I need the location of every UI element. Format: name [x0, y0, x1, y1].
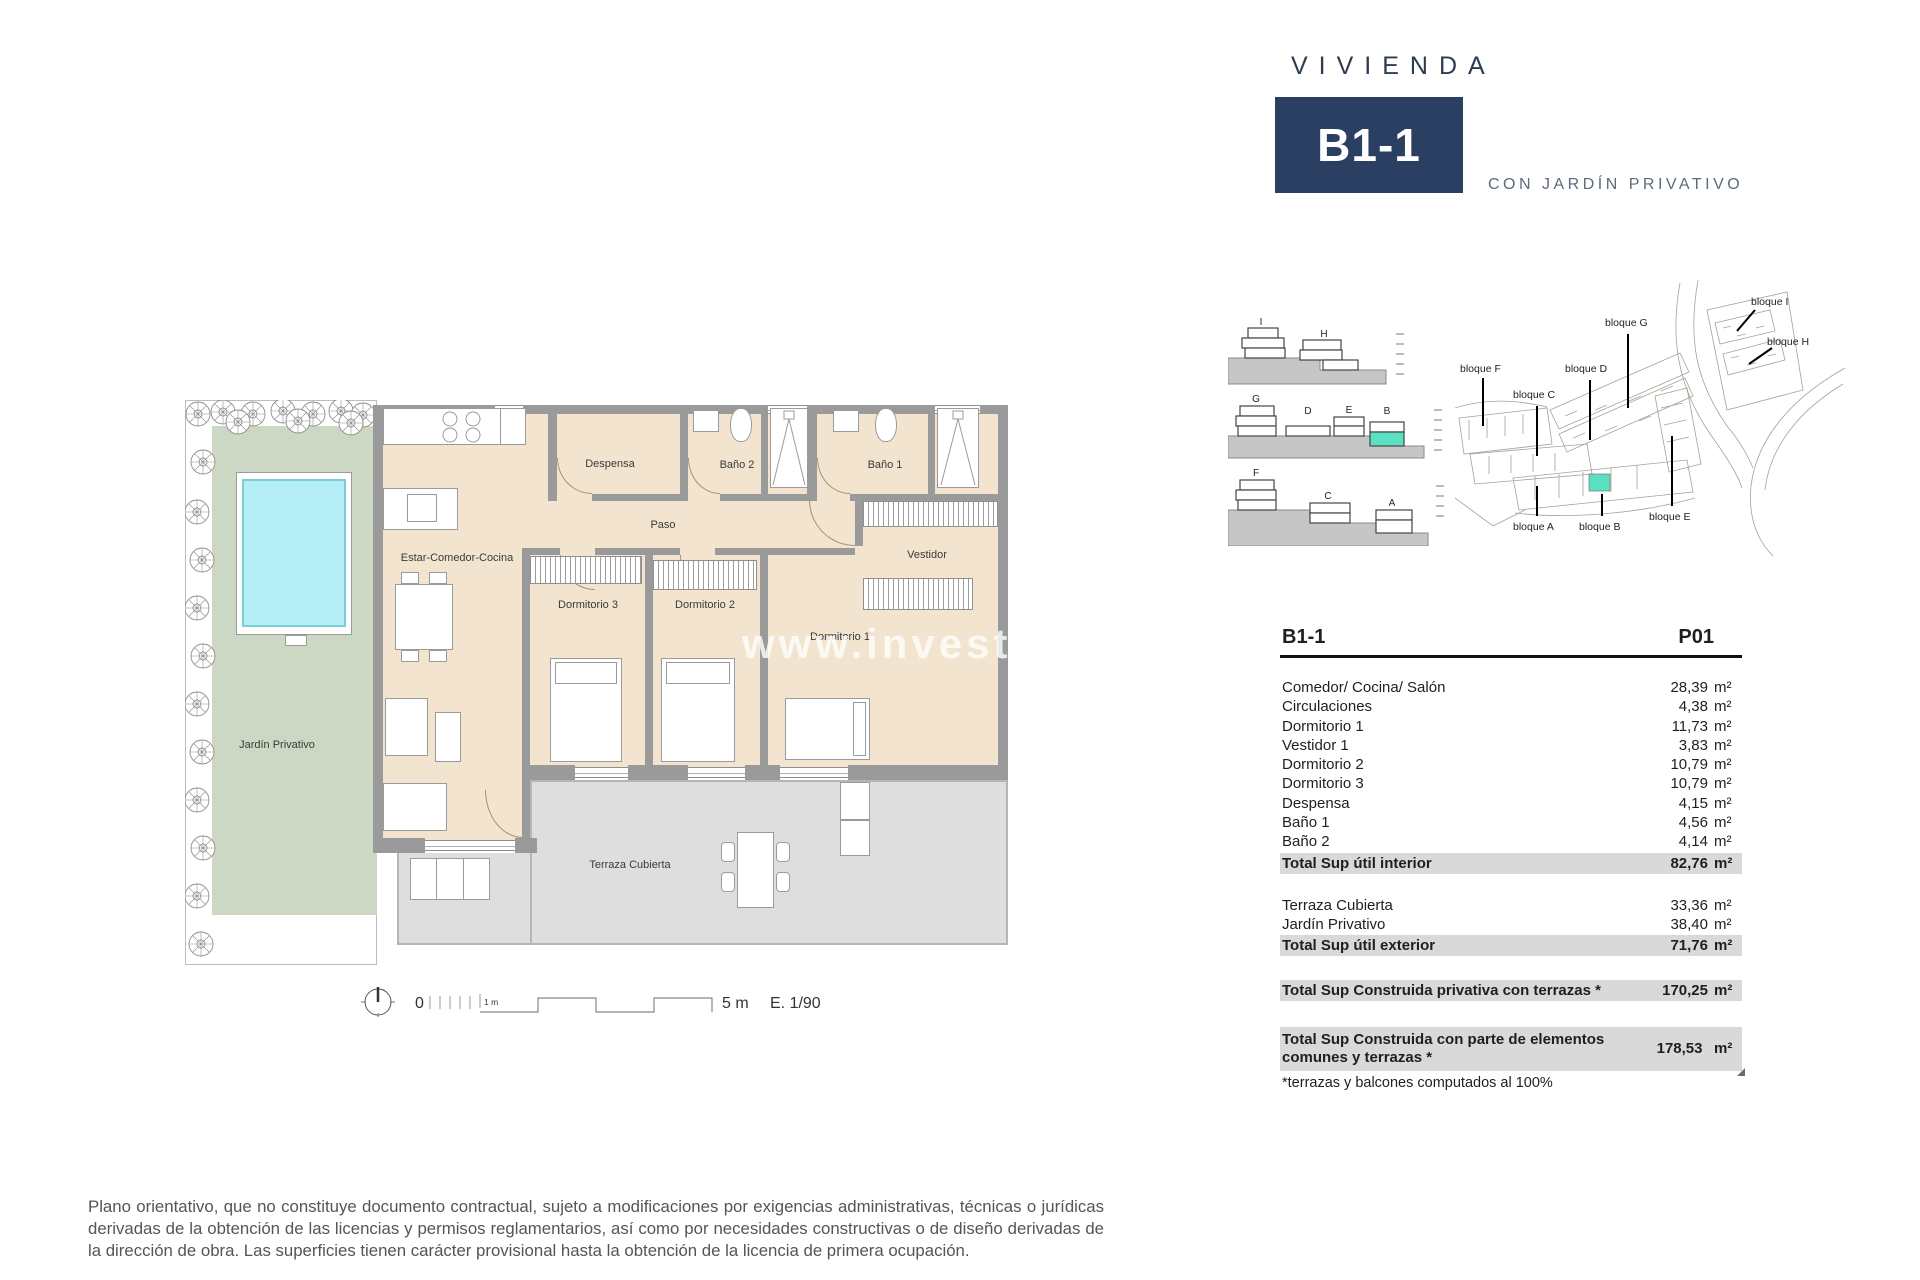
pool-water	[242, 479, 346, 627]
row-unit: m²	[1708, 697, 1740, 716]
siteplan-label-e: bloque E	[1649, 511, 1690, 523]
wall	[807, 405, 817, 501]
sofa	[383, 783, 447, 831]
row-value: 178,53	[1633, 1040, 1703, 1058]
table-row: Baño 14,56m²	[1280, 813, 1742, 832]
room-label-bano2: Baño 2	[720, 459, 755, 471]
row-label: Dormitorio 1	[1282, 717, 1638, 736]
toilet	[875, 408, 897, 442]
room-label-estar: Estar-Comedor-Cocina	[401, 552, 513, 564]
row-value: 71,76	[1638, 935, 1708, 956]
bed-pillow	[853, 702, 866, 756]
elev-label-f: F	[1253, 468, 1259, 479]
row-label: Total Sup Construida privativa con terra…	[1282, 980, 1638, 1001]
site-plan: bloque F bloque C bloque D bloque G bloq…	[1455, 268, 1845, 568]
row-label: Dormitorio 3	[1282, 774, 1638, 793]
dining-table	[395, 584, 453, 650]
row-unit: m²	[1708, 774, 1740, 793]
scale-bar: 0 1 m 5 m E. 1/90	[358, 984, 828, 1024]
bed-pillow	[555, 662, 617, 684]
row-label: Baño 1	[1282, 813, 1638, 832]
row-label: Dormitorio 2	[1282, 755, 1638, 774]
scale-one-m: 1 m	[484, 997, 498, 1007]
siteplan-label-a: bloque A	[1513, 521, 1554, 533]
wall	[522, 548, 560, 555]
elev-label-g: G	[1252, 394, 1260, 405]
wall	[515, 838, 537, 853]
row-value: 11,73	[1638, 717, 1708, 736]
pool-step	[285, 635, 307, 646]
row-unit: m²	[1708, 980, 1740, 1001]
table-row: Dormitorio 111,73m²	[1280, 717, 1742, 736]
window	[688, 767, 745, 778]
siteplan-label-f: bloque F	[1460, 363, 1501, 375]
row-unit: m²	[1708, 794, 1740, 813]
row-unit: m²	[1708, 755, 1740, 774]
table-row: Baño 24,14m²	[1280, 832, 1742, 851]
wardrobe	[530, 556, 642, 584]
scale-ratio: E. 1/90	[770, 995, 821, 1012]
row-label: Vestidor 1	[1282, 736, 1638, 755]
total-interior-row: Total Sup útil interior 82,76 m²	[1280, 853, 1742, 874]
shower	[937, 408, 979, 488]
armchair	[385, 698, 428, 756]
row-value: 3,83	[1638, 736, 1708, 755]
terrace-chair	[721, 872, 735, 892]
wall	[592, 494, 680, 501]
dining-chair	[401, 572, 419, 584]
table-row: Comedor/ Cocina/ Salón28,39m²	[1280, 678, 1742, 697]
outdoor-bench	[410, 858, 490, 900]
pool	[236, 472, 352, 635]
row-unit: m²	[1708, 896, 1740, 915]
row-unit: m²	[1708, 1040, 1740, 1058]
terrace-table	[737, 832, 774, 908]
elevation-diagrams: I H G D E B F C A	[1228, 318, 1460, 546]
wall	[680, 405, 688, 501]
room-label-bano1: Baño 1	[868, 459, 903, 471]
sink	[693, 410, 719, 432]
sink	[833, 410, 859, 432]
table-row: Circulaciones4,38m²	[1280, 697, 1742, 716]
table-row: Dormitorio 210,79m²	[1280, 755, 1742, 774]
outdoor-bench-lines	[463, 858, 464, 900]
sliding-door	[425, 840, 515, 851]
wall	[848, 765, 998, 780]
coffee-table	[435, 712, 461, 762]
row-label: Total Sup útil interior	[1282, 853, 1638, 874]
row-value: 33,36	[1638, 896, 1708, 915]
elev-label-a: A	[1389, 498, 1396, 509]
scale-zero: 0	[415, 995, 424, 1012]
row-unit: m²	[1708, 935, 1740, 956]
shower	[770, 408, 808, 488]
row-unit: m²	[1708, 853, 1740, 874]
wall	[373, 838, 425, 853]
room-label-vestidor: Vestidor	[907, 549, 947, 561]
row-value: 4,15	[1638, 794, 1708, 813]
row-value: 170,25	[1638, 980, 1708, 1001]
total-exterior-row: Total Sup útil exterior 71,76 m²	[1280, 935, 1742, 956]
unit-code: B1-1	[1317, 118, 1421, 172]
floor-plan: Estar-Comedor-Cocina Despensa Baño 2 Bañ…	[185, 400, 1008, 965]
table-row: Dormitorio 310,79m²	[1280, 774, 1742, 793]
table-row: Vestidor 13,83m²	[1280, 736, 1742, 755]
bed-pillow	[666, 662, 730, 684]
row-unit: m²	[1708, 832, 1740, 851]
terrace-chair	[776, 842, 790, 862]
row-label: Circulaciones	[1282, 697, 1638, 716]
wall	[715, 548, 855, 555]
areas-table: B1-1 P01 Comedor/ Cocina/ Salón28,39m²Ci…	[1280, 626, 1742, 1091]
wall	[928, 405, 935, 495]
terrace-chair	[721, 842, 735, 862]
row-label: Comedor/ Cocina/ Salón	[1282, 678, 1638, 697]
wall	[373, 405, 383, 853]
total-privativa-row: Total Sup Construida privativa con terra…	[1280, 980, 1742, 1001]
outdoor-bench-lines	[436, 858, 437, 900]
wall	[522, 548, 530, 838]
wall	[998, 405, 1008, 780]
terrace-chair	[776, 872, 790, 892]
siteplan-label-c: bloque C	[1513, 389, 1555, 401]
table-row: Despensa4,15m²	[1280, 794, 1742, 813]
elev-unit-highlight	[1370, 432, 1404, 446]
siteplan-label-g: bloque G	[1605, 317, 1648, 329]
dining-chair	[429, 650, 447, 662]
row-value: 28,39	[1638, 678, 1708, 697]
planter-box	[840, 820, 870, 856]
siteplan-label-b: bloque B	[1579, 521, 1620, 533]
row-label: Jardín Privativo	[1282, 915, 1638, 934]
interior-rows: Comedor/ Cocina/ Salón28,39m²Circulacion…	[1280, 678, 1742, 852]
planter-box	[840, 782, 870, 820]
watermark: www.investf	[742, 620, 1030, 668]
row-value: 10,79	[1638, 774, 1708, 793]
row-value: 4,14	[1638, 832, 1708, 851]
kitchen-cabinet	[500, 408, 526, 445]
scale-five-m: 5 m	[722, 995, 749, 1012]
table-footnote: *terrazas y balcones computados al 100%	[1280, 1075, 1742, 1091]
row-value: 4,56	[1638, 813, 1708, 832]
wall	[548, 494, 557, 501]
wall	[720, 494, 817, 501]
siteplan-label-d: bloque D	[1565, 363, 1607, 375]
room-label-jardin: Jardín Privativo	[239, 739, 315, 751]
compass-icon	[361, 987, 395, 1017]
wall	[745, 765, 780, 780]
row-label: Despensa	[1282, 794, 1638, 813]
wardrobe	[653, 560, 757, 590]
room-label-terraza: Terraza Cubierta	[589, 859, 670, 871]
siteplan-unit-highlight	[1589, 474, 1610, 491]
row-unit: m²	[1708, 736, 1740, 755]
disclaimer-text: Plano orientativo, que no constituye doc…	[88, 1196, 1104, 1261]
wall	[645, 548, 653, 772]
wall	[850, 494, 1000, 501]
unit-code-badge: B1-1	[1275, 97, 1463, 193]
kitchen-sink	[407, 494, 437, 522]
table-row: Terraza Cubierta33,36m²	[1280, 896, 1742, 915]
row-value: 10,79	[1638, 755, 1708, 774]
elev-label-d: D	[1304, 406, 1311, 417]
elev-label-c: C	[1324, 491, 1331, 502]
room-label-dorm3: Dormitorio 3	[558, 599, 618, 611]
dining-chair	[401, 650, 419, 662]
row-value: 4,38	[1638, 697, 1708, 716]
row-value: 82,76	[1638, 853, 1708, 874]
page-kicker: VIVIENDA	[1291, 52, 1496, 81]
stove-icon	[437, 410, 489, 443]
wall	[522, 765, 575, 780]
dining-chair	[429, 572, 447, 584]
row-label: Baño 2	[1282, 832, 1638, 851]
toilet	[730, 408, 752, 442]
room-label-dorm2: Dormitorio 2	[675, 599, 735, 611]
elev-label-i: I	[1260, 318, 1263, 328]
wall	[855, 494, 863, 546]
row-label: Terraza Cubierta	[1282, 896, 1638, 915]
elev-label-e: E	[1346, 405, 1353, 416]
row-unit: m²	[1708, 915, 1740, 934]
wall	[628, 765, 688, 780]
room-label-despensa: Despensa	[585, 458, 635, 470]
row-unit: m²	[1708, 678, 1740, 697]
row-unit: m²	[1708, 717, 1740, 736]
page-subtitle: CON JARDÍN PRIVATIVO	[1488, 176, 1743, 194]
areas-table-header: B1-1 P01	[1280, 626, 1742, 658]
row-unit: m²	[1708, 813, 1740, 832]
window	[575, 767, 628, 778]
wardrobe	[863, 578, 973, 610]
room-label-paso: Paso	[650, 519, 675, 531]
table-floor-code: P01	[1678, 626, 1714, 649]
wardrobe	[863, 501, 998, 527]
siteplan-label-h: bloque H	[1767, 336, 1809, 348]
elev-label-h: H	[1320, 329, 1327, 340]
elev-label-b: B	[1384, 406, 1391, 417]
exterior-rows: Terraza Cubierta33,36m²Jardín Privativo3…	[1280, 896, 1742, 935]
row-label: Total Sup útil exterior	[1282, 935, 1638, 956]
window	[780, 767, 848, 778]
siteplan-label-i: bloque I	[1751, 296, 1788, 308]
table-row: Jardín Privativo38,40m²	[1280, 915, 1742, 934]
wall	[761, 405, 768, 495]
wall	[595, 548, 680, 555]
wall	[548, 405, 557, 501]
total-comunes-row: Total Sup Construida con parte de elemen…	[1280, 1027, 1742, 1071]
row-label: Total Sup Construida con parte de elemen…	[1282, 1031, 1627, 1067]
row-value: 38,40	[1638, 915, 1708, 934]
table-unit-code: B1-1	[1282, 626, 1325, 649]
